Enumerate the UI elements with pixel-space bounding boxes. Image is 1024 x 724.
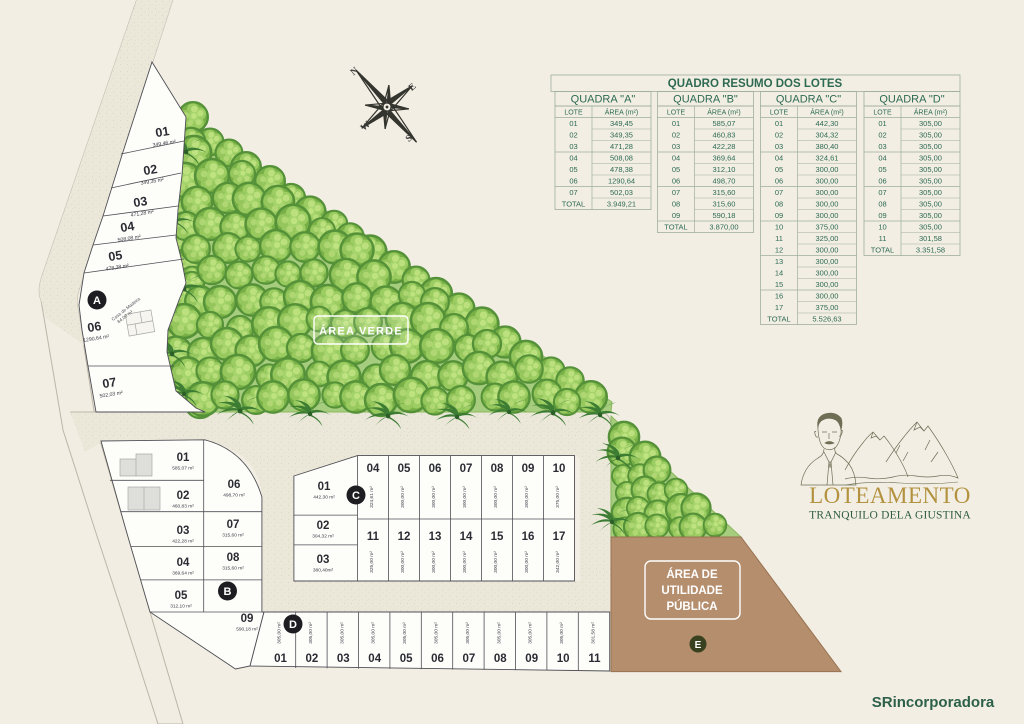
svg-text:12: 12 — [398, 531, 411, 543]
svg-text:3.351,58: 3.351,58 — [916, 246, 945, 255]
svg-text:305,00 m²: 305,00 m² — [308, 622, 314, 644]
svg-text:03: 03 — [569, 142, 577, 151]
svg-text:305,00 m²: 305,00 m² — [465, 622, 471, 644]
svg-text:460,83 m²: 460,83 m² — [172, 504, 194, 510]
svg-text:04: 04 — [878, 154, 886, 163]
svg-text:325,00: 325,00 — [816, 234, 839, 243]
svg-text:07: 07 — [775, 188, 783, 197]
svg-text:02: 02 — [142, 162, 158, 178]
svg-text:02: 02 — [569, 131, 577, 140]
svg-text:498,70: 498,70 — [713, 177, 736, 186]
svg-text:03: 03 — [132, 194, 148, 210]
svg-text:08: 08 — [672, 200, 680, 209]
svg-text:305,00: 305,00 — [919, 119, 942, 128]
svg-text:422,28: 422,28 — [713, 142, 736, 151]
svg-text:478,38: 478,38 — [610, 165, 633, 174]
svg-text:04: 04 — [672, 154, 680, 163]
svg-text:15: 15 — [775, 280, 783, 289]
svg-text:369,64 m²: 369,64 m² — [172, 571, 194, 577]
svg-text:375,00 m²: 375,00 m² — [555, 486, 561, 508]
svg-text:5.526,63: 5.526,63 — [812, 315, 841, 324]
svg-text:315,60: 315,60 — [713, 188, 736, 197]
svg-text:305,00: 305,00 — [919, 154, 942, 163]
svg-text:300,00: 300,00 — [816, 211, 839, 220]
svg-text:04: 04 — [119, 219, 135, 235]
svg-text:17: 17 — [553, 531, 566, 543]
svg-text:305,00: 305,00 — [919, 142, 942, 151]
svg-text:300,00: 300,00 — [816, 200, 839, 209]
svg-text:ÁREA VERDE: ÁREA VERDE — [319, 325, 403, 338]
svg-text:15: 15 — [491, 531, 504, 543]
svg-text:07: 07 — [878, 188, 886, 197]
svg-text:01: 01 — [569, 119, 577, 128]
svg-text:C: C — [352, 490, 360, 502]
svg-text:300,00: 300,00 — [816, 246, 839, 255]
svg-text:01: 01 — [318, 481, 331, 493]
svg-text:07: 07 — [672, 188, 680, 197]
svg-text:305,00 m²: 305,00 m² — [496, 622, 502, 644]
svg-text:04: 04 — [569, 154, 577, 163]
svg-text:10: 10 — [775, 223, 783, 232]
svg-text:369,64: 369,64 — [713, 154, 736, 163]
svg-text:ÁREA (m²): ÁREA (m²) — [810, 108, 843, 117]
svg-text:QUADRA "C": QUADRA "C" — [776, 94, 841, 106]
svg-text:07: 07 — [101, 375, 117, 391]
svg-text:07: 07 — [460, 463, 473, 475]
svg-text:07: 07 — [463, 653, 476, 665]
svg-text:09: 09 — [672, 211, 680, 220]
svg-text:TOTAL: TOTAL — [664, 223, 687, 232]
svg-text:590,18 m²: 590,18 m² — [236, 627, 258, 633]
svg-text:305,00: 305,00 — [919, 131, 942, 140]
svg-text:10: 10 — [553, 463, 566, 475]
svg-text:A: A — [93, 295, 101, 307]
svg-text:3.949,21: 3.949,21 — [607, 200, 636, 209]
svg-text:10: 10 — [557, 653, 570, 665]
svg-text:300,00: 300,00 — [816, 188, 839, 197]
svg-text:304,32: 304,32 — [816, 131, 839, 140]
svg-text:06: 06 — [429, 463, 442, 475]
svg-text:08: 08 — [878, 200, 886, 209]
svg-text:05: 05 — [400, 653, 413, 665]
svg-text:09: 09 — [525, 653, 538, 665]
svg-text:300,00: 300,00 — [816, 292, 839, 301]
svg-text:305,00 m²: 305,00 m² — [339, 622, 345, 644]
svg-text:300,00: 300,00 — [816, 280, 839, 289]
svg-text:11: 11 — [879, 234, 887, 243]
svg-text:460,83: 460,83 — [713, 131, 736, 140]
svg-text:17: 17 — [775, 303, 783, 312]
svg-text:B: B — [224, 586, 232, 598]
svg-text:LOTE: LOTE — [564, 110, 583, 117]
svg-text:ÁREA (m²): ÁREA (m²) — [707, 108, 740, 117]
svg-text:QUADRA "B": QUADRA "B" — [673, 94, 738, 106]
svg-text:05: 05 — [672, 165, 680, 174]
svg-text:305,00: 305,00 — [919, 188, 942, 197]
svg-text:301,58: 301,58 — [919, 234, 942, 243]
svg-text:01: 01 — [177, 452, 190, 464]
svg-text:03: 03 — [672, 142, 680, 151]
svg-text:08: 08 — [227, 552, 240, 564]
svg-text:508,08: 508,08 — [610, 154, 633, 163]
svg-text:02: 02 — [672, 131, 680, 140]
svg-text:300,00: 300,00 — [816, 177, 839, 186]
svg-text:324,61: 324,61 — [816, 154, 839, 163]
svg-text:QUADRA "D": QUADRA "D" — [879, 94, 944, 106]
svg-text:05: 05 — [775, 165, 783, 174]
svg-text:LOTE: LOTE — [770, 110, 789, 117]
svg-text:QUADRO RESUMO DOS LOTES: QUADRO RESUMO DOS LOTES — [668, 78, 843, 90]
svg-text:305,00: 305,00 — [919, 223, 942, 232]
svg-text:03: 03 — [177, 525, 190, 537]
svg-text:06: 06 — [431, 653, 444, 665]
svg-text:ÁREA DE: ÁREA DE — [666, 568, 718, 581]
svg-text:11: 11 — [367, 531, 380, 543]
svg-text:09: 09 — [878, 211, 886, 220]
svg-text:16: 16 — [775, 292, 783, 301]
svg-text:08: 08 — [494, 653, 507, 665]
svg-text:301,58 m²: 301,58 m² — [591, 622, 597, 644]
svg-text:305,00 m²: 305,00 m² — [528, 622, 534, 644]
svg-text:06: 06 — [228, 479, 241, 491]
svg-text:01: 01 — [775, 119, 783, 128]
svg-text:01: 01 — [672, 119, 680, 128]
svg-text:08: 08 — [491, 463, 504, 475]
svg-text:342,00 m²: 342,00 m² — [555, 551, 561, 573]
svg-text:305,00: 305,00 — [919, 177, 942, 186]
svg-text:09: 09 — [522, 463, 535, 475]
svg-text:590,18: 590,18 — [713, 211, 736, 220]
svg-text:14: 14 — [775, 269, 783, 278]
svg-text:01: 01 — [154, 124, 170, 140]
svg-text:08: 08 — [775, 200, 783, 209]
svg-text:585,07 m²: 585,07 m² — [172, 466, 194, 472]
svg-text:304,32 m²: 304,32 m² — [312, 534, 334, 540]
svg-text:585,07: 585,07 — [713, 119, 736, 128]
svg-text:300,00 m²: 300,00 m² — [493, 486, 499, 508]
svg-text:375,00: 375,00 — [816, 223, 839, 232]
svg-text:02: 02 — [317, 520, 330, 532]
svg-text:LOTE: LOTE — [667, 110, 686, 117]
svg-text:D: D — [289, 619, 297, 631]
svg-text:375,00: 375,00 — [816, 303, 839, 312]
svg-text:300,00 m²: 300,00 m² — [524, 486, 530, 508]
svg-text:498,70 m²: 498,70 m² — [223, 493, 245, 499]
svg-text:QUADRA "A": QUADRA "A" — [571, 94, 636, 106]
svg-text:300,00 m²: 300,00 m² — [431, 486, 437, 508]
svg-text:300,00 m²: 300,00 m² — [431, 551, 437, 573]
svg-text:07: 07 — [227, 519, 240, 531]
svg-text:300,00: 300,00 — [816, 257, 839, 266]
svg-text:471,28: 471,28 — [610, 142, 633, 151]
svg-text:349,45: 349,45 — [610, 119, 633, 128]
svg-text:E: E — [695, 640, 702, 651]
svg-text:TRANQUILO DELA GIUSTINA: TRANQUILO DELA GIUSTINA — [809, 510, 971, 522]
svg-text:09: 09 — [775, 211, 783, 220]
svg-text:1290,64: 1290,64 — [608, 177, 635, 186]
svg-text:300,00: 300,00 — [816, 269, 839, 278]
svg-text:SRincorporadora: SRincorporadora — [872, 694, 995, 711]
svg-text:03: 03 — [317, 554, 330, 566]
svg-text:312,10: 312,10 — [713, 165, 736, 174]
svg-text:05: 05 — [175, 590, 188, 602]
svg-text:442,30: 442,30 — [816, 119, 839, 128]
svg-text:305,00 m²: 305,00 m² — [277, 622, 283, 644]
svg-text:300,00 m²: 300,00 m² — [524, 551, 530, 573]
svg-text:06: 06 — [569, 177, 577, 186]
svg-text:TOTAL: TOTAL — [871, 246, 894, 255]
svg-text:380,40: 380,40 — [816, 142, 839, 151]
svg-text:UTILIDADE: UTILIDADE — [661, 585, 723, 597]
svg-text:300,00: 300,00 — [816, 165, 839, 174]
svg-text:PÚBLICA: PÚBLICA — [666, 600, 717, 613]
svg-text:01: 01 — [274, 653, 287, 665]
svg-text:305,00 m²: 305,00 m² — [371, 622, 377, 644]
svg-text:06: 06 — [86, 319, 102, 335]
svg-text:02: 02 — [177, 490, 190, 502]
svg-text:13: 13 — [775, 257, 783, 266]
svg-text:300,00 m²: 300,00 m² — [462, 551, 468, 573]
svg-text:06: 06 — [878, 177, 886, 186]
svg-text:442,30 m²: 442,30 m² — [313, 495, 335, 501]
svg-text:305,00 m²: 305,00 m² — [402, 622, 408, 644]
svg-text:TOTAL: TOTAL — [767, 315, 790, 324]
svg-text:10: 10 — [878, 223, 886, 232]
svg-text:09: 09 — [241, 613, 254, 625]
svg-text:300,00 m²: 300,00 m² — [400, 486, 406, 508]
svg-text:05: 05 — [569, 165, 577, 174]
svg-text:380,40m²: 380,40m² — [313, 568, 334, 574]
svg-text:312,10 m²: 312,10 m² — [170, 604, 192, 610]
svg-text:03: 03 — [878, 142, 886, 151]
svg-text:502,03: 502,03 — [610, 188, 633, 197]
svg-text:3.870,00: 3.870,00 — [709, 223, 738, 232]
svg-text:300,00 m²: 300,00 m² — [400, 551, 406, 573]
svg-text:LOTE: LOTE — [873, 110, 892, 117]
svg-text:300,00 m²: 300,00 m² — [493, 551, 499, 573]
svg-text:04: 04 — [177, 557, 190, 569]
svg-text:13: 13 — [429, 531, 442, 543]
svg-text:ÁREA (m²): ÁREA (m²) — [605, 108, 638, 117]
svg-text:300,00 m²: 300,00 m² — [462, 486, 468, 508]
svg-text:05: 05 — [107, 248, 123, 264]
svg-text:305,00 m²: 305,00 m² — [434, 622, 440, 644]
svg-text:16: 16 — [522, 531, 535, 543]
svg-text:349,35: 349,35 — [610, 131, 633, 140]
svg-text:02: 02 — [878, 131, 886, 140]
svg-text:305,00: 305,00 — [919, 165, 942, 174]
svg-text:305,00 m²: 305,00 m² — [559, 622, 565, 644]
svg-text:LOTEAMENTO: LOTEAMENTO — [809, 483, 971, 508]
svg-text:315,60 m²: 315,60 m² — [222, 533, 244, 539]
svg-text:02: 02 — [775, 131, 783, 140]
svg-text:TOTAL: TOTAL — [562, 200, 585, 209]
svg-text:422,28 m²: 422,28 m² — [172, 539, 194, 545]
svg-text:06: 06 — [672, 177, 680, 186]
svg-text:04: 04 — [367, 463, 380, 475]
svg-text:07: 07 — [569, 188, 577, 197]
svg-text:06: 06 — [775, 177, 783, 186]
svg-text:ÁREA (m²): ÁREA (m²) — [914, 108, 947, 117]
svg-text:315,60: 315,60 — [713, 200, 736, 209]
svg-text:04: 04 — [368, 653, 381, 665]
svg-text:03: 03 — [337, 653, 350, 665]
svg-text:03: 03 — [775, 142, 783, 151]
svg-text:05: 05 — [398, 463, 411, 475]
svg-text:12: 12 — [775, 246, 783, 255]
svg-text:11: 11 — [775, 234, 783, 243]
svg-text:14: 14 — [460, 531, 473, 543]
svg-text:305,00: 305,00 — [919, 211, 942, 220]
svg-text:325,00 m²: 325,00 m² — [369, 551, 375, 573]
svg-text:04: 04 — [775, 154, 783, 163]
svg-text:324,61 m²: 324,61 m² — [369, 486, 375, 508]
svg-text:315,60 m²: 315,60 m² — [222, 566, 244, 572]
svg-text:05: 05 — [878, 165, 886, 174]
svg-text:11: 11 — [588, 653, 601, 665]
svg-text:305,00: 305,00 — [919, 200, 942, 209]
svg-text:02: 02 — [306, 653, 319, 665]
svg-text:01: 01 — [878, 119, 886, 128]
